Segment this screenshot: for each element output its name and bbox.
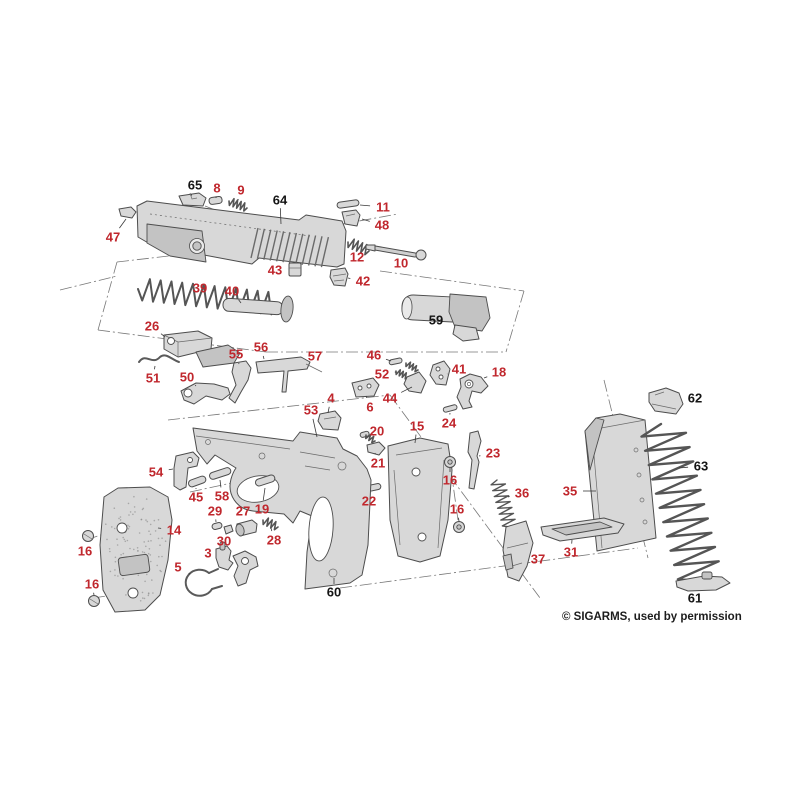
part-label-16: 16 — [78, 545, 92, 558]
part-label-28: 28 — [267, 534, 281, 547]
part-label-43: 43 — [268, 264, 282, 277]
part-label-36: 36 — [515, 487, 529, 500]
part-label-12: 12 — [350, 251, 364, 264]
leader-line-4 — [328, 407, 329, 413]
part-label-9: 9 — [237, 184, 244, 197]
leader-line-63 — [679, 467, 688, 468]
part-label-16: 16 — [450, 503, 464, 516]
part-label-50: 50 — [180, 371, 194, 384]
part-label-39: 39 — [193, 282, 207, 295]
diagram-canvas: 4765896411481210434239405926565557465241… — [0, 0, 800, 800]
leader-line-58 — [220, 480, 221, 487]
credit-text: © SIGARMS, used by permission — [562, 611, 742, 623]
part-label-56: 56 — [254, 341, 268, 354]
part-label-46: 46 — [367, 349, 381, 362]
part-label-63: 63 — [694, 460, 708, 473]
leader-line-18 — [484, 377, 487, 378]
part-label-23: 23 — [486, 447, 500, 460]
leader-line-40 — [239, 300, 241, 303]
part-label-35: 35 — [563, 485, 577, 498]
part-label-45: 45 — [189, 491, 203, 504]
part-label-6: 6 — [366, 401, 373, 414]
part-label-42: 42 — [356, 275, 370, 288]
leader-line-26 — [161, 334, 165, 337]
part-label-14: 14 — [167, 524, 181, 537]
part-label-57: 57 — [308, 350, 322, 363]
part-label-47: 47 — [106, 231, 120, 244]
part-label-29: 29 — [208, 505, 222, 518]
part-label-64: 64 — [273, 194, 287, 207]
part-label-53: 53 — [304, 404, 318, 417]
leader-line-56 — [263, 356, 264, 359]
part-label-62: 62 — [688, 392, 702, 405]
part-label-18: 18 — [492, 366, 506, 379]
leader-line-47 — [119, 219, 126, 228]
leader-line-15 — [415, 435, 416, 443]
part-label-26: 26 — [145, 320, 159, 333]
part-label-4: 4 — [327, 392, 334, 405]
part-label-59: 59 — [429, 314, 443, 327]
part-label-48: 48 — [375, 219, 389, 232]
leader-line-28 — [271, 528, 272, 531]
leader-line-51 — [154, 366, 155, 369]
part-label-5: 5 — [174, 561, 181, 574]
part-label-19: 19 — [255, 503, 269, 516]
part-label-27: 27 — [236, 505, 250, 518]
part-label-3: 3 — [204, 547, 211, 560]
part-label-24: 24 — [442, 417, 456, 430]
leader-line-64 — [280, 208, 281, 224]
part-label-10: 10 — [394, 257, 408, 270]
part-label-20: 20 — [370, 425, 384, 438]
part-label-61: 61 — [688, 592, 702, 605]
part-label-55: 55 — [229, 348, 243, 361]
leader-line-6 — [366, 396, 367, 398]
leader-line-54 — [169, 469, 173, 470]
part-label-65: 65 — [188, 179, 202, 192]
leader-line-5 — [189, 573, 190, 574]
leader-line-16 — [458, 518, 459, 521]
part-label-15: 15 — [410, 420, 424, 433]
leader-lines-layer — [0, 0, 800, 800]
leader-line-65 — [191, 194, 192, 196]
leader-line-50 — [195, 385, 196, 386]
part-label-37: 37 — [531, 553, 545, 566]
part-label-30: 30 — [217, 535, 231, 548]
part-label-54: 54 — [149, 466, 163, 479]
part-label-21: 21 — [371, 457, 385, 470]
part-label-16: 16 — [443, 474, 457, 487]
leader-line-48 — [362, 219, 370, 221]
part-label-11: 11 — [376, 201, 390, 214]
part-label-51: 51 — [146, 372, 160, 385]
part-label-16: 16 — [85, 578, 99, 591]
part-label-8: 8 — [213, 182, 220, 195]
leader-line-11 — [360, 205, 370, 206]
part-label-60: 60 — [327, 586, 341, 599]
leader-line-46 — [386, 359, 391, 361]
part-label-58: 58 — [215, 490, 229, 503]
leader-line-53 — [313, 419, 317, 437]
part-label-22: 22 — [362, 495, 376, 508]
leader-line-44 — [401, 387, 412, 392]
part-label-31: 31 — [564, 546, 578, 559]
part-label-41: 41 — [452, 363, 466, 376]
part-label-40: 40 — [225, 285, 239, 298]
leader-line-19 — [263, 488, 265, 500]
part-label-44: 44 — [383, 392, 397, 405]
part-label-52: 52 — [375, 368, 389, 381]
